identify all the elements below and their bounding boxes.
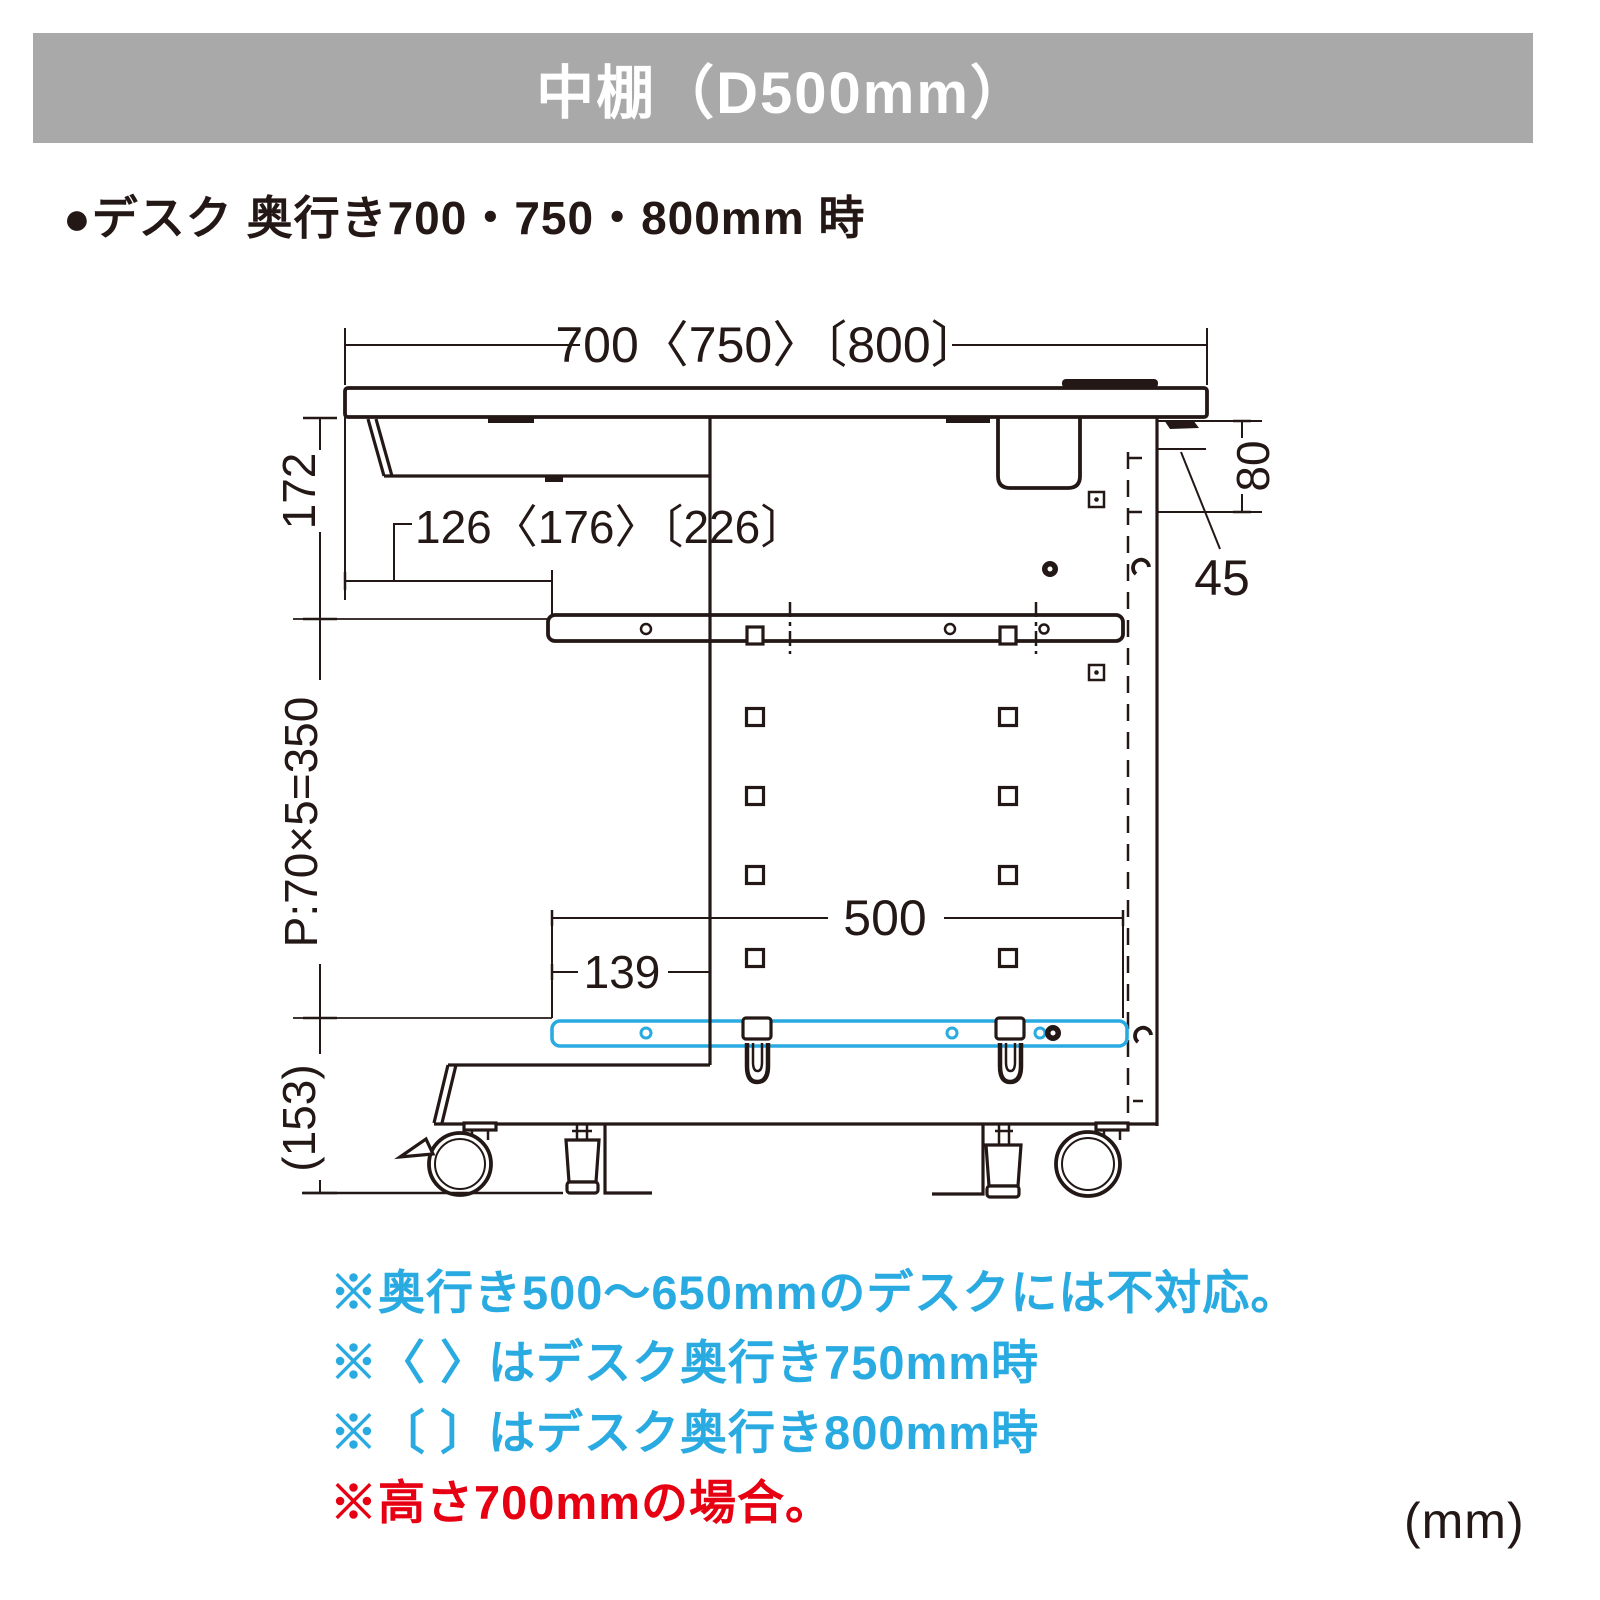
caster-front bbox=[400, 1123, 496, 1195]
dim-hole-pitch: P:70×5=350 bbox=[275, 697, 327, 948]
hook-icon bbox=[1133, 560, 1149, 574]
notes: ※奥行き500〜650mmのデスクには不対応。 ※〈 〉はデスク奥行き750mm… bbox=[330, 1258, 1298, 1538]
page: 中棚（D500mm） ●デスク 奥行き700・750・800mm 時 bbox=[0, 0, 1600, 1600]
hook-icon bbox=[1135, 1028, 1151, 1042]
desk-top bbox=[345, 379, 1207, 423]
note-height-700: ※高さ700mmの場合。 bbox=[330, 1468, 1298, 1538]
unit-label: (mm) bbox=[1404, 1492, 1525, 1550]
dim-shelf-depth: 500 bbox=[843, 890, 926, 946]
base bbox=[434, 1065, 1157, 1124]
shelf-clip-right bbox=[996, 1018, 1024, 1082]
note-bracket-750: ※〈 〉はデスク奥行き750mm時 bbox=[330, 1328, 1298, 1398]
top-clip bbox=[1164, 420, 1199, 429]
note-bracket-800: ※〔 〕はデスク奥行き800mm時 bbox=[330, 1398, 1298, 1468]
dimension-lines bbox=[293, 328, 1262, 1193]
cable-grommet bbox=[1062, 379, 1158, 388]
brake-lever bbox=[400, 1139, 433, 1157]
leveling-foot-rear bbox=[932, 1123, 1021, 1197]
dim-rear-gap: 80 bbox=[1227, 440, 1279, 491]
dim-shelf-front-offset: 139 bbox=[584, 946, 661, 998]
dim-rear-offset: 45 bbox=[1194, 550, 1250, 606]
note-depth-incompatible: ※奥行き500〜650mmのデスクには不対応。 bbox=[330, 1258, 1298, 1328]
dim-tray-offset: 126〈176〉〔226〕 bbox=[415, 501, 806, 553]
dim-base-height: (153) bbox=[273, 1064, 325, 1171]
caster-rear bbox=[1056, 1123, 1128, 1196]
middle-shelf bbox=[552, 1021, 1151, 1046]
top-shelf-rail bbox=[548, 602, 1123, 654]
leveling-foot-front bbox=[566, 1123, 652, 1193]
under-desk-bracket bbox=[998, 418, 1080, 488]
keyboard-tray bbox=[368, 419, 710, 482]
shelf-clip-left bbox=[743, 1018, 771, 1082]
dim-desk-depth: 700〈750〉〔800〕 bbox=[555, 317, 980, 373]
dim-under-top: 172 bbox=[273, 453, 325, 530]
